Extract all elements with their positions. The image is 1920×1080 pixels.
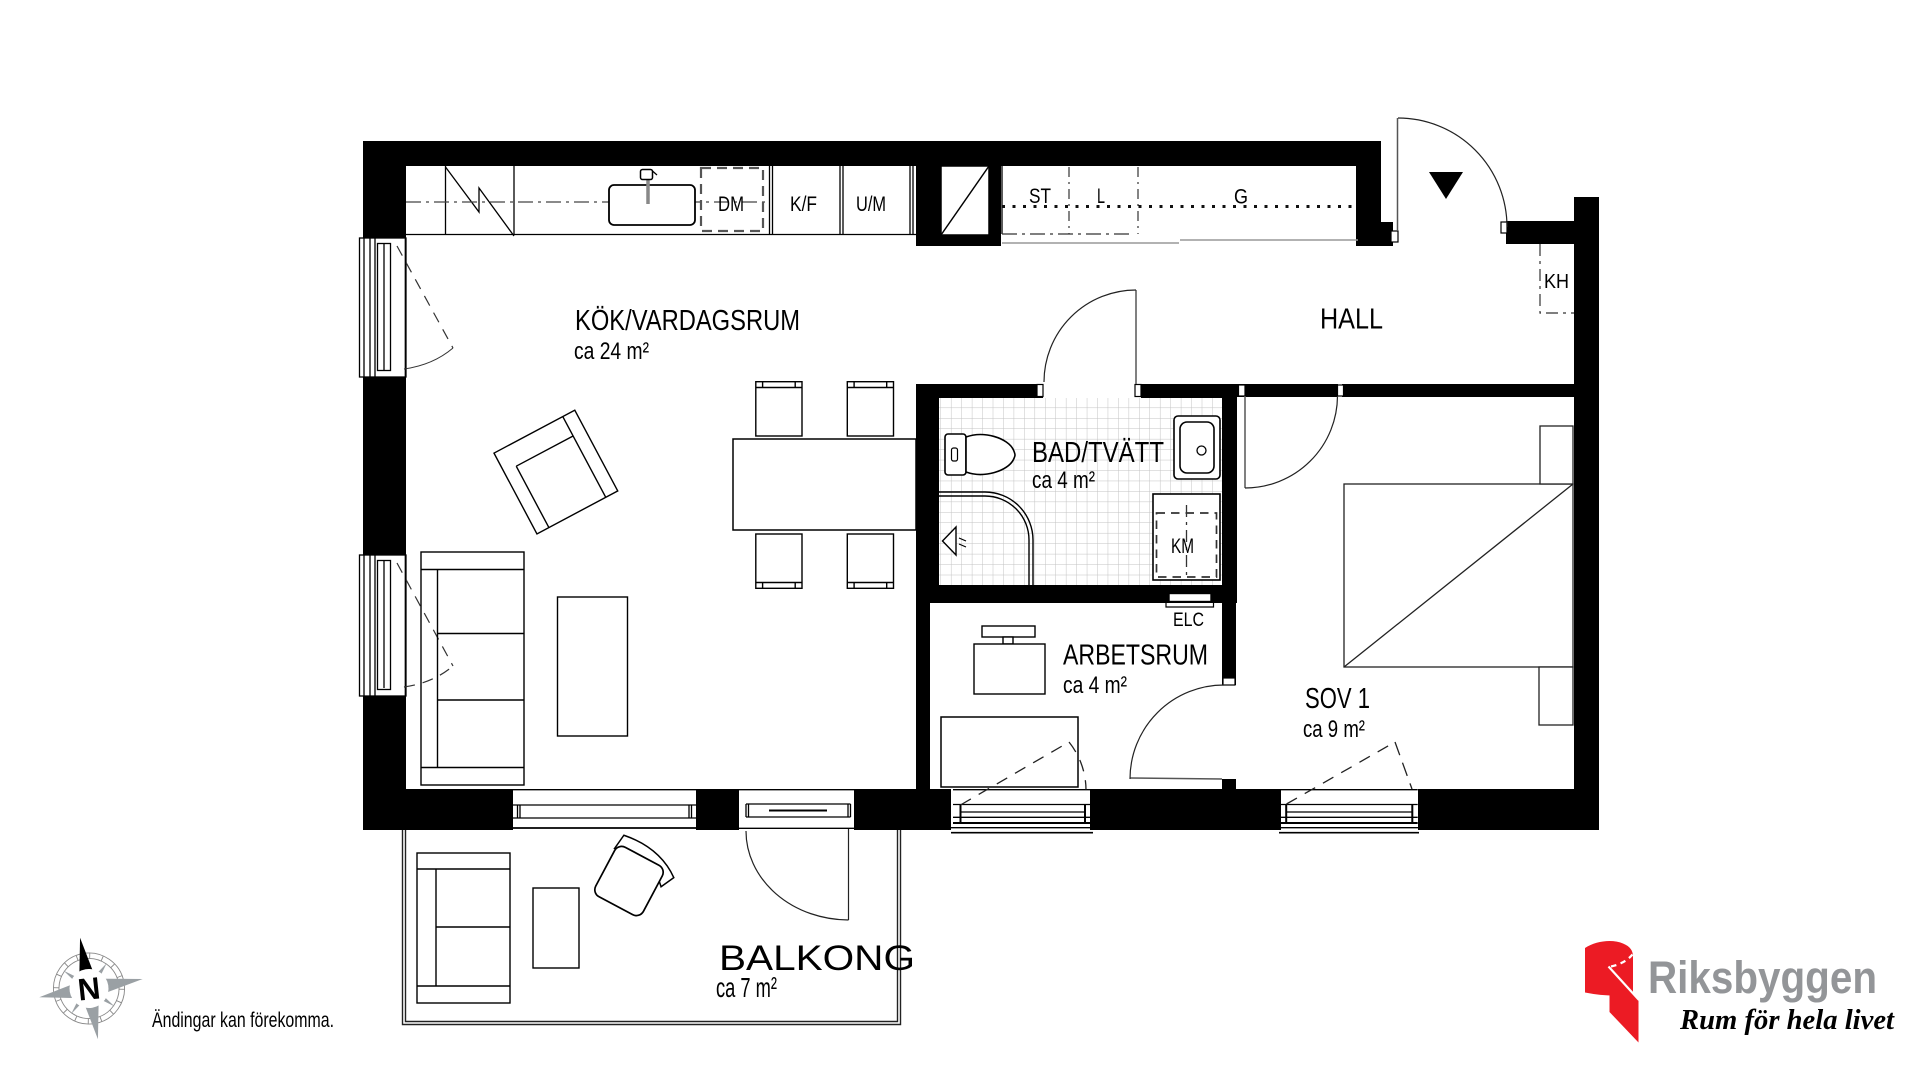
svg-text:U/M: U/M [856, 193, 886, 216]
svg-text:BAD/TVÄTT: BAD/TVÄTT [1032, 437, 1164, 469]
svg-text:ARBETSRUM: ARBETSRUM [1063, 640, 1208, 672]
svg-text:ca 9 m²: ca 9 m² [1303, 716, 1365, 743]
svg-text:KÖK/VARDAGSRUM: KÖK/VARDAGSRUM [575, 305, 800, 337]
svg-text:L: L [1097, 185, 1105, 208]
svg-text:ca 4 m²: ca 4 m² [1032, 467, 1095, 494]
svg-text:ca 24 m²: ca 24 m² [574, 338, 649, 365]
svg-text:ELC: ELC [1173, 610, 1204, 631]
svg-text:DM: DM [718, 193, 744, 216]
svg-text:Ändingar kan förekomma.: Ändingar kan förekomma. [152, 1009, 334, 1032]
svg-text:KH: KH [1544, 271, 1569, 293]
svg-text:Riksbyggen: Riksbyggen [1648, 952, 1877, 1003]
svg-text:N: N [76, 970, 102, 1007]
svg-text:KM: KM [1171, 535, 1194, 558]
svg-text:ST: ST [1029, 185, 1051, 208]
svg-text:ca 7 m²: ca 7 m² [716, 972, 777, 1003]
svg-text:K/F: K/F [790, 193, 817, 216]
svg-text:HALL: HALL [1320, 304, 1383, 336]
svg-text:ca 4 m²: ca 4 m² [1063, 672, 1127, 699]
svg-text:Rum för hela livet: Rum för hela livet [1679, 1004, 1895, 1036]
svg-text:SOV 1: SOV 1 [1305, 683, 1370, 715]
svg-text:G: G [1234, 186, 1248, 209]
